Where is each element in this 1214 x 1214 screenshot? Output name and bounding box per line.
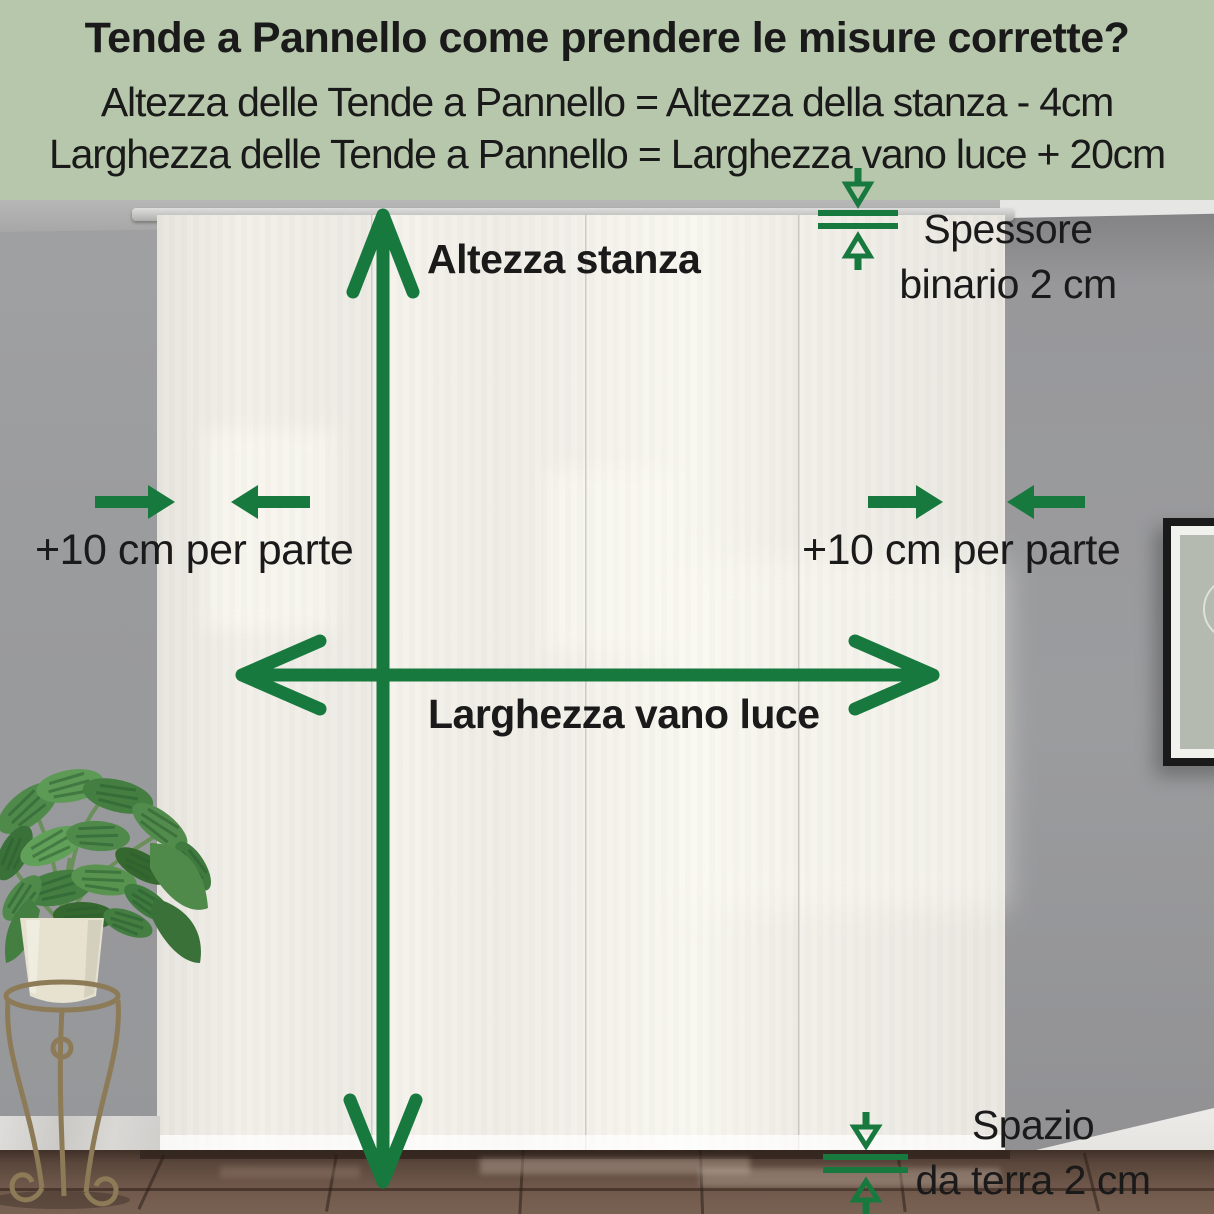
track-thickness-line1: Spessore [880, 202, 1136, 257]
track-thickness-label: Spessore binario 2 cm [880, 202, 1136, 312]
picture-frame [1163, 518, 1214, 766]
track-thickness-line2: binario 2 cm [880, 257, 1136, 312]
floor-gap-line1: Spazio [908, 1098, 1158, 1153]
tile-joint [325, 1154, 338, 1212]
page-title: Tende a Pannello come prendere le misure… [0, 14, 1214, 62]
side-margin-label-left: +10 cm per parte [35, 526, 353, 575]
curtain-texture [157, 215, 1005, 1152]
formula-width-text: Larghezza delle Tende a Pannello = Largh… [0, 128, 1214, 180]
panel-curtains [157, 215, 1005, 1152]
floor-gap-line2: da terra 2 cm [908, 1153, 1158, 1208]
artwork-circle-motif [1203, 577, 1214, 641]
formula-height-text: Altezza delle Tende a Pannello = Altezza… [0, 76, 1214, 128]
frame-artwork [1180, 535, 1214, 749]
header-panel: Tende a Pannello come prendere le misure… [0, 0, 1214, 200]
opening-width-label: Larghezza vano luce [428, 691, 820, 738]
plant-stand [6, 982, 118, 1204]
measurement-infographic: Tende a Pannello come prendere le misure… [0, 0, 1214, 1214]
room-height-label: Altezza stanza [427, 236, 700, 283]
potted-plant-illustration [0, 748, 230, 1214]
formula-block: Altezza delle Tende a Pannello = Altezza… [0, 76, 1214, 180]
floor-reflection [220, 1166, 360, 1178]
plant-pot [20, 918, 104, 1003]
side-margin-label-right: +10 cm per parte [802, 526, 1120, 575]
floor-gap-label: Spazio da terra 2 cm [908, 1098, 1158, 1208]
